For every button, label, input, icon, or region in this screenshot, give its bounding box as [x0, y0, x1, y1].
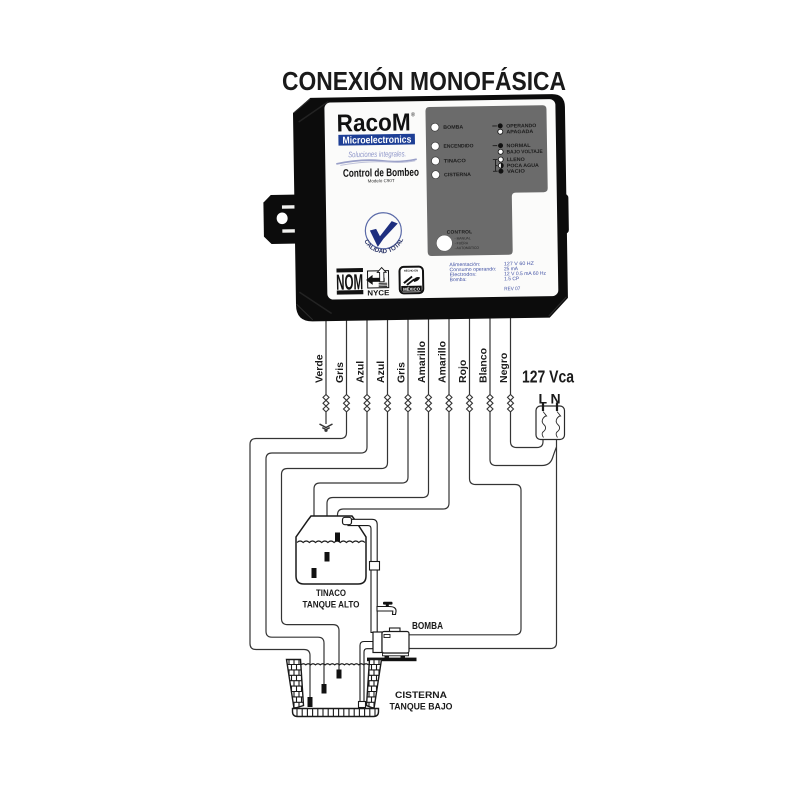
svg-text:1.5 CP: 1.5 CP — [504, 276, 520, 282]
svg-text:- FUERA: - FUERA — [455, 241, 469, 245]
svg-text:TANQUE ALTO: TANQUE ALTO — [303, 600, 360, 611]
svg-text:CISTERNA: CISTERNA — [444, 172, 471, 178]
svg-text:HECHO EN: HECHO EN — [404, 268, 418, 272]
svg-text:MÉXICO: MÉXICO — [403, 286, 421, 291]
svg-text:VACIO: VACIO — [507, 169, 525, 175]
svg-text:TANQUE BAJO: TANQUE BAJO — [390, 702, 453, 713]
svg-text:Rojo: Rojo — [457, 360, 469, 383]
svg-text:Azul: Azul — [375, 361, 387, 383]
svg-text:REV 07: REV 07 — [504, 286, 520, 292]
svg-text:®: ® — [411, 111, 415, 118]
svg-text:127 Vca: 127 Vca — [522, 367, 574, 387]
svg-text:NYCE: NYCE — [367, 288, 389, 297]
svg-text:Gris: Gris — [334, 362, 346, 383]
svg-text:ENCENDIDO: ENCENDIDO — [443, 143, 473, 149]
svg-text:Amarillo: Amarillo — [416, 341, 428, 383]
svg-text:N: N — [551, 391, 561, 407]
svg-text:- MANUAL: - MANUAL — [454, 236, 470, 240]
svg-text:TINACO: TINACO — [444, 158, 466, 164]
svg-text:Microelectronics: Microelectronics — [342, 135, 412, 147]
svg-text:CISTERNA: CISTERNA — [395, 690, 447, 701]
svg-text:BAJO VOLTAJE: BAJO VOLTAJE — [507, 149, 544, 156]
svg-text:Gris: Gris — [396, 362, 408, 383]
svg-text:Amarillo: Amarillo — [437, 341, 449, 383]
svg-text:CONEXIÓN MONOFÁSICA: CONEXIÓN MONOFÁSICA — [282, 66, 566, 96]
svg-text:Negro: Negro — [498, 353, 510, 383]
svg-text:BOMBA: BOMBA — [412, 621, 443, 632]
svg-text:RacoM: RacoM — [336, 109, 410, 137]
svg-text:Blanco: Blanco — [478, 348, 490, 383]
svg-text:TINACO: TINACO — [316, 588, 346, 599]
svg-text:Bomba:: Bomba: — [450, 277, 467, 283]
svg-text:APAGADA: APAGADA — [506, 129, 533, 135]
svg-text:Soluciones integrales.: Soluciones integrales. — [348, 149, 406, 159]
svg-text:NOM: NOM — [336, 269, 363, 294]
svg-text:Verde: Verde — [314, 354, 326, 383]
svg-text:CONTROL: CONTROL — [447, 229, 473, 235]
svg-text:Modelo C90T: Modelo C90T — [368, 178, 395, 183]
svg-text:- AUTOMÁTICO: - AUTOMÁTICO — [455, 246, 480, 250]
svg-text:BOMBA: BOMBA — [443, 125, 463, 131]
svg-text:Azul: Azul — [355, 361, 367, 383]
